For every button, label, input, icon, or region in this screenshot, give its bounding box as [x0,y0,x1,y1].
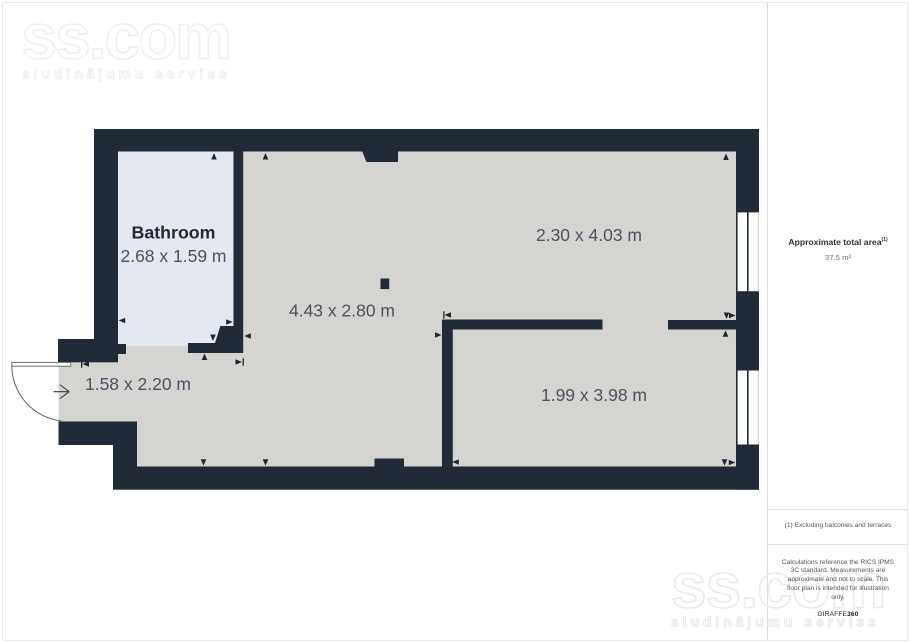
svg-text:4.43 x 2.80 m: 4.43 x 2.80 m [289,300,395,320]
svg-text:1.58 x 2.20 m: 1.58 x 2.20 m [85,374,191,394]
svg-text:2.68 x 1.59 m: 2.68 x 1.59 m [120,246,226,266]
svg-text:ss.com: ss.com [22,1,231,73]
svg-text:sludinājumu serviss: sludinājumu serviss [22,66,231,82]
svg-text:Bathroom: Bathroom [132,223,216,243]
svg-text:1.99 x 3.98 m: 1.99 x 3.98 m [541,385,647,405]
svg-text:2.30 x 4.03 m: 2.30 x 4.03 m [536,225,642,245]
